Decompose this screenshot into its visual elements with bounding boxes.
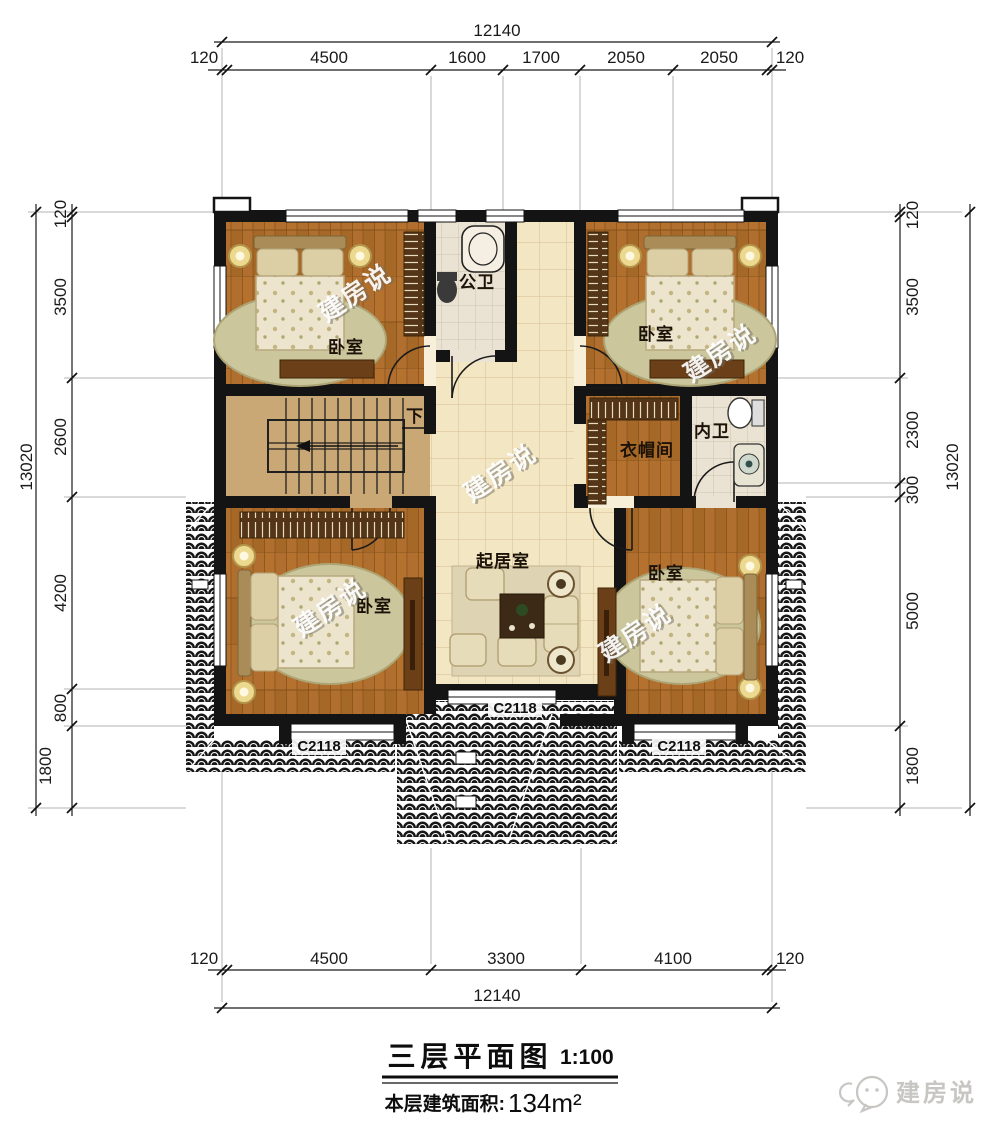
plan-scale: 1:100 — [560, 1046, 614, 1069]
dim-right-1: 3500 — [903, 278, 922, 316]
wardrobe — [404, 232, 424, 336]
dim-top-1: 4500 — [310, 48, 348, 67]
armchair — [466, 568, 504, 600]
label-stairs-down: 下 — [406, 407, 424, 426]
pillow — [251, 624, 278, 671]
label-public-bathroom: 公卫 — [459, 273, 495, 292]
dim-top-6: 120 — [776, 48, 804, 67]
pillow — [257, 249, 298, 276]
brand-logo-text: 建房说 — [896, 1079, 977, 1107]
brand-logo: 建房说 — [840, 1077, 977, 1111]
dim-top-3: 1700 — [522, 48, 560, 67]
clothes-rack — [588, 420, 606, 504]
dim-bottom-total: 12140 — [473, 986, 520, 1005]
label-window-right: C2118 — [657, 738, 700, 755]
dim-left-3: 4200 — [51, 574, 70, 612]
dim-left-4: 800 — [51, 694, 70, 722]
tv-cabinet — [280, 360, 374, 378]
pillow — [716, 577, 743, 624]
toilet-tank — [752, 400, 764, 426]
dim-right-3: 300 — [903, 476, 922, 504]
toilet — [728, 398, 752, 428]
chat-bubble-icon — [840, 1077, 887, 1111]
label-bedroom-top-right: 卧室 — [638, 324, 674, 344]
bed-headboard — [644, 236, 736, 249]
dim-bottom-2: 3300 — [487, 949, 525, 968]
dim-right-0: 120 — [903, 201, 922, 229]
dim-left-5: 1800 — [36, 747, 55, 785]
dim-top-5: 2050 — [700, 48, 738, 67]
bed-headboard — [238, 570, 251, 676]
area-label: 本层建筑面积: — [385, 1092, 505, 1115]
dim-bottom-3: 4100 — [654, 949, 692, 968]
dim-right-4: 5000 — [903, 592, 922, 630]
clothes-rack — [590, 398, 678, 420]
dim-top-0: 120 — [190, 48, 218, 67]
dim-left-0: 120 — [51, 200, 70, 228]
living-room-furniture — [450, 566, 580, 676]
armchair — [450, 634, 486, 666]
pillow — [647, 249, 688, 276]
dim-top-2: 1600 — [448, 48, 486, 67]
bed-headboard — [744, 574, 757, 680]
plan-title: 三层平面图 — [387, 1041, 552, 1072]
dim-bottom-1: 4500 — [310, 949, 348, 968]
label-private-bathroom: 内卫 — [694, 421, 730, 441]
floor-plan-drawing: 12140 120 4500 1600 1700 2050 2050 120 1… — [0, 0, 1000, 1138]
label-window-left: C2118 — [297, 738, 340, 755]
dim-bottom-0: 120 — [190, 949, 218, 968]
roof-left-strip — [186, 502, 214, 772]
label-bedroom-bottom-right: 卧室 — [648, 563, 684, 583]
dim-right-total: 13020 — [943, 443, 962, 490]
label-bedroom-top-left: 卧室 — [328, 337, 364, 357]
armchair — [498, 636, 536, 666]
dim-top-4: 2050 — [607, 48, 645, 67]
clothes-rack — [240, 512, 404, 538]
pillow — [716, 628, 743, 675]
pillow — [302, 249, 343, 276]
floor-plan-page: 12140 120 4500 1600 1700 2050 2050 120 1… — [0, 0, 1000, 1138]
label-living-room: 起居室 — [475, 551, 530, 571]
wardrobe — [588, 232, 608, 336]
label-cloakroom: 衣帽间 — [620, 440, 674, 460]
dim-bottom-4: 120 — [776, 949, 804, 968]
dim-right-5: 1800 — [903, 747, 922, 785]
roof-right-strip — [778, 502, 806, 772]
title-block: 三层平面图 1:100 本层建筑面积: 134m² — [382, 1041, 618, 1118]
dim-top-total: 12140 — [473, 21, 520, 40]
pillow — [251, 573, 278, 620]
dim-left-total: 13020 — [17, 443, 36, 490]
plant — [516, 604, 528, 616]
area-value: 134m² — [508, 1088, 582, 1118]
dim-right-2: 2300 — [903, 411, 922, 449]
dim-left-2: 2600 — [51, 418, 70, 456]
pillow — [692, 249, 733, 276]
bed-headboard — [254, 236, 346, 249]
label-window-center: C2118 — [493, 700, 536, 717]
dim-left-1: 3500 — [51, 278, 70, 316]
